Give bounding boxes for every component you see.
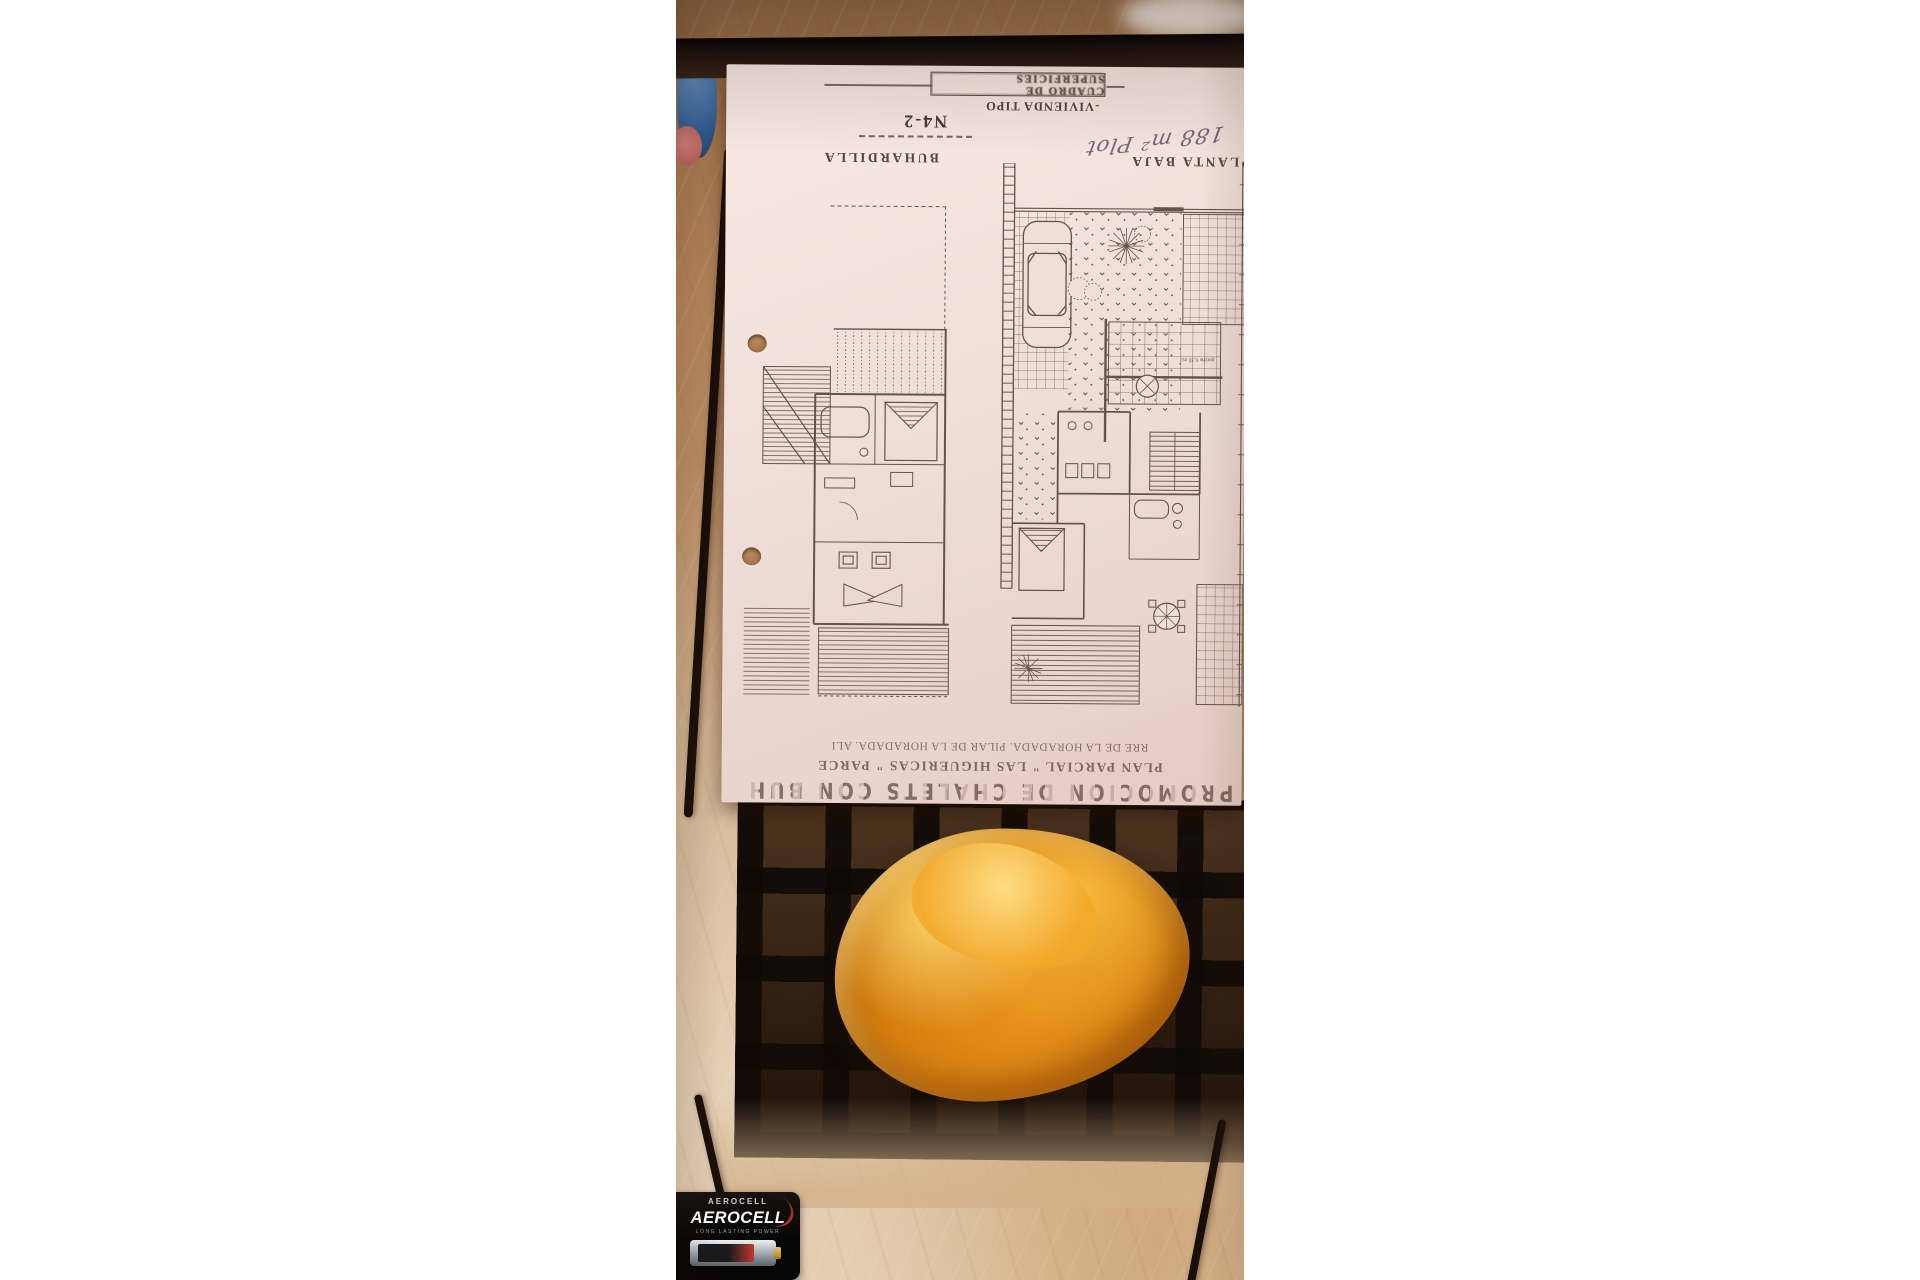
floorplan-sheet: porche 6.35 m2 [721, 64, 1244, 806]
battery-brand-small: AEROCELL [676, 1197, 800, 1206]
stamp-plan-parcial: PLAN PARCIAL " LAS HIGUERICAS " PARCE [746, 756, 1234, 775]
surface-table-title: CUADRO DE SUPERFICIES [930, 72, 1105, 97]
label-planta-baja: PLANTA BAJA [1130, 153, 1244, 170]
rule-left [1106, 86, 1124, 88]
dashed-underline [859, 135, 972, 138]
battery-pack: AEROCELL AEROCELL LONG LASTING POWER [676, 1192, 800, 1280]
rule-right [824, 84, 932, 87]
battery-tagline: LONG LASTING POWER [676, 1229, 800, 1235]
battery-cell-label [698, 1244, 754, 1262]
dwelling-type-label: -VIVIENDA TIPO [985, 98, 1099, 114]
screenshot: porche 6.35 m2 [0, 0, 1920, 1280]
label-buhardilla: BUHARDILLA [822, 149, 939, 166]
lattice-fade [716, 1098, 1244, 1208]
photo: porche 6.35 m2 [676, 0, 1244, 1280]
type-code: N4-2 [902, 110, 947, 131]
hole-punch-top [748, 334, 767, 352]
stamp-promotion: PROMOCION DE CHALETS CON BUHARD [745, 776, 1233, 805]
hole-punch-bottom [742, 547, 761, 565]
overexposed-glare [1121, 0, 1244, 38]
document-text-layer: PROMOCION DE CHALETS CON BUHARD PLAN PAR… [721, 64, 1244, 806]
pink-object [676, 126, 702, 166]
stamp-location: RRE DE LA HORADADA. PILAR DE LA HORADADA… [746, 738, 1234, 753]
battery-brand-large: AEROCELL [676, 1209, 800, 1228]
